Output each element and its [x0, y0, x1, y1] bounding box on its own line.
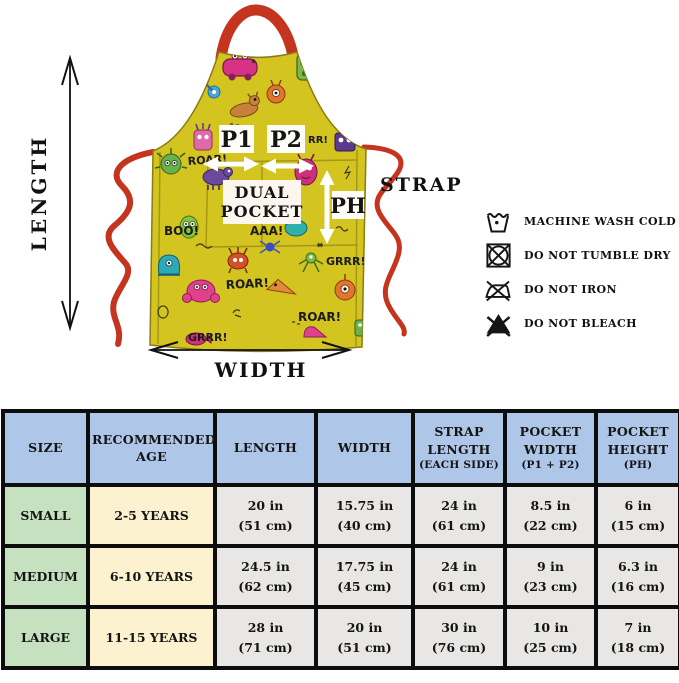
- header-length: LENGTH: [215, 411, 316, 485]
- header-strap-length: STRAP LENGTH(EACH SIDE): [413, 411, 505, 485]
- care-row: DO NOT TUMBLE DRY: [481, 239, 679, 272]
- cell-width: 20 in(51 cm): [316, 607, 413, 668]
- print-word: RR!: [308, 135, 328, 146]
- dual-pocket-label: DUAL POCKET: [221, 180, 304, 224]
- care-label: MACHINE WASH COLD: [524, 215, 676, 228]
- care-label: DO NOT IRON: [524, 283, 617, 296]
- cell-pocket-height: 7 in(18 cm): [596, 607, 679, 668]
- ph-label: PH: [330, 191, 366, 219]
- length-label: LENGTH: [27, 135, 51, 251]
- cell-age: 2-5 YEARS: [88, 485, 215, 546]
- waist-tie-left: [109, 152, 153, 344]
- header-width: WIDTH: [316, 411, 413, 485]
- care-row: DO NOT IRON: [481, 273, 679, 306]
- table-header-row: SIZE RECOMMENDED AGE LENGTH WIDTH STRAP …: [3, 411, 679, 485]
- cell-length: 24.5 in(62 cm): [215, 546, 316, 607]
- apron-illustration: ROAR! RR! BOO! AAA! GRRR! ROAR! ROAR! GR…: [0, 0, 679, 405]
- care-label: DO NOT BLEACH: [524, 317, 637, 330]
- do-not-bleach-icon: [481, 307, 515, 340]
- cell-pocket-height: 6.3 in(16 cm): [596, 546, 679, 607]
- header-pocket-width: POCKET WIDTH(P1 + P2): [505, 411, 596, 485]
- header-pocket-height: POCKET HEIGHT(PH): [596, 411, 679, 485]
- print-word: AAA!: [250, 224, 283, 238]
- cell-pocket-height: 6 in(15 cm): [596, 485, 679, 546]
- cell-width: 15.75 in(40 cm): [316, 485, 413, 546]
- strap-label: STRAP: [380, 174, 463, 196]
- care-row: MACHINE WASH COLD: [481, 205, 679, 238]
- header-recommended-age: RECOMMENDED AGE: [88, 411, 215, 485]
- cell-pocket-width: 10 in(25 cm): [505, 607, 596, 668]
- cell-strap: 30 in(76 cm): [413, 607, 505, 668]
- svg-text:POCKET: POCKET: [221, 202, 304, 221]
- neck-strap: [221, 10, 293, 58]
- header-size: SIZE: [3, 411, 88, 485]
- product-infographic: ROAR! RR! BOO! AAA! GRRR! ROAR! ROAR! GR…: [0, 0, 679, 683]
- table-row-small: SMALL 2-5 YEARS 20 in(51 cm) 15.75 in(40…: [3, 485, 679, 546]
- svg-text:PH: PH: [330, 193, 366, 218]
- care-row: DO NOT BLEACH: [481, 307, 679, 340]
- cell-strap: 24 in(61 cm): [413, 485, 505, 546]
- print-word: BOO!: [164, 224, 199, 238]
- cell-length: 20 in(51 cm): [215, 485, 316, 546]
- length-arrow: [62, 58, 78, 328]
- cell-size: SMALL: [3, 485, 88, 546]
- p2-label: P2: [267, 125, 305, 153]
- cell-length: 28 in(71 cm): [215, 607, 316, 668]
- print-word: GRRR!: [326, 255, 365, 268]
- cell-pocket-width: 9 in(23 cm): [505, 546, 596, 607]
- width-label: WIDTH: [214, 358, 308, 382]
- svg-text:P1: P1: [221, 127, 253, 153]
- do-not-tumble-dry-icon: [481, 239, 515, 272]
- cell-size: MEDIUM: [3, 546, 88, 607]
- cell-size: LARGE: [3, 607, 88, 668]
- print-word: ROAR!: [225, 276, 269, 292]
- cell-age: 11-15 YEARS: [88, 607, 215, 668]
- p1-label: P1: [219, 125, 254, 153]
- cell-width: 17.75 in(45 cm): [316, 546, 413, 607]
- print-word: ROAR!: [298, 310, 341, 324]
- svg-text:DUAL: DUAL: [235, 183, 290, 202]
- size-table: SIZE RECOMMENDED AGE LENGTH WIDTH STRAP …: [1, 409, 679, 670]
- print-word: GRRR!: [188, 331, 227, 344]
- care-instructions: MACHINE WASH COLD DO NOT TUMBLE DRY DO N…: [481, 205, 679, 341]
- svg-text:P2: P2: [270, 127, 302, 153]
- cell-age: 6-10 YEARS: [88, 546, 215, 607]
- care-label: DO NOT TUMBLE DRY: [524, 249, 671, 262]
- machine-wash-cold-icon: [481, 205, 515, 238]
- do-not-iron-icon: [481, 273, 515, 306]
- table-row-medium: MEDIUM 6-10 YEARS 24.5 in(62 cm) 17.75 i…: [3, 546, 679, 607]
- cell-pocket-width: 8.5 in(22 cm): [505, 485, 596, 546]
- cell-strap: 24 in(61 cm): [413, 546, 505, 607]
- table-row-large: LARGE 11-15 YEARS 28 in(71 cm) 20 in(51 …: [3, 607, 679, 668]
